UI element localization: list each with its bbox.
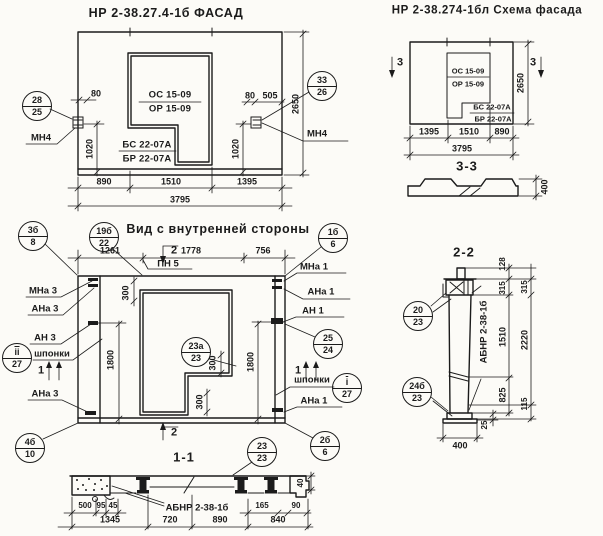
dim-95: 95 bbox=[97, 502, 106, 510]
callout-33-26: 33 26 bbox=[307, 71, 337, 101]
callout-19b-22: 19б 22 bbox=[89, 222, 119, 252]
dim-1800-right: 1800 bbox=[247, 352, 256, 372]
dim-2220: 2220 bbox=[521, 330, 530, 350]
label-pn5: ПН 5 bbox=[157, 259, 179, 269]
cut-flag-2-top: 2 bbox=[171, 246, 177, 257]
facade-mark-or: ОР 15-09 bbox=[149, 104, 191, 114]
callout-3b-8: 3б 8 bbox=[18, 221, 48, 251]
dim-890-schema: 890 bbox=[494, 128, 509, 137]
dim-400-section33: 400 bbox=[541, 179, 550, 194]
callout-20-23: 20 23 bbox=[403, 301, 433, 331]
dim-1345: 1345 bbox=[100, 516, 120, 525]
label-shponki-left: шпонки bbox=[34, 349, 70, 359]
dim-2650-schema: 2650 bbox=[517, 73, 526, 93]
label-ana1-bottom: АНа 1 bbox=[301, 396, 328, 406]
callout-24b-23: 24б 23 bbox=[402, 377, 432, 407]
dim-756: 756 bbox=[255, 247, 270, 256]
facade-title: НР 2-38.27.4-1б ФАСАД bbox=[89, 7, 244, 20]
dim-825: 825 bbox=[499, 387, 508, 402]
section-mark-3-left: 3 bbox=[397, 58, 403, 69]
dim-80-right: 80 bbox=[245, 92, 255, 101]
label-ana3-top: АНа 3 bbox=[32, 304, 59, 314]
section33-title: 3-3 bbox=[456, 160, 478, 173]
part-label-abnr-22: АБНР 2-38-1б bbox=[479, 301, 489, 364]
dim-45: 45 bbox=[109, 502, 118, 510]
callout-ii-27: ii 27 bbox=[2, 343, 32, 373]
callout-i-27: i 27 bbox=[332, 373, 362, 403]
dim-40: 40 bbox=[297, 479, 305, 488]
dim-300-bottom: 300 bbox=[196, 394, 205, 409]
part-label-abnr-11: АБНР 2-38-1б bbox=[166, 503, 229, 513]
dim-80-left: 80 bbox=[91, 90, 101, 99]
dim-128: 128 bbox=[499, 257, 507, 270]
dim-505: 505 bbox=[262, 92, 277, 101]
label-ana1-top: АНа 1 bbox=[308, 287, 335, 297]
callout-23a-23: 23а 23 bbox=[181, 337, 211, 367]
dim-1395-schema: 1395 bbox=[419, 128, 439, 137]
dim-1510-section22: 1510 bbox=[499, 327, 508, 347]
callout-28-25: 28 25 bbox=[22, 91, 52, 121]
dim-300-top: 300 bbox=[122, 285, 131, 300]
dim-90: 90 bbox=[292, 502, 301, 510]
label-mna1: МНа 1 bbox=[300, 262, 328, 272]
dim-400-section22: 400 bbox=[452, 442, 467, 451]
facade-anchor-label-right: МН4 bbox=[307, 129, 327, 139]
dim-1510-schema: 1510 bbox=[459, 128, 479, 137]
dim-1778: 1778 bbox=[181, 247, 201, 256]
schema-mark-or: ОР 15-09 bbox=[452, 80, 484, 88]
callout-23-23: 23 23 bbox=[247, 437, 277, 467]
dim-315-inner: 315 bbox=[499, 281, 507, 294]
callout-25-24: 25 24 bbox=[313, 329, 343, 359]
dim-890-section11: 890 bbox=[212, 516, 227, 525]
drawing-sheet: НР 2-38.27.4-1б ФАСАД ОС 15-09 ОР 15-09 … bbox=[0, 0, 603, 536]
label-shponki-right: шпонки bbox=[294, 375, 330, 385]
dim-3795-schema: 3795 bbox=[452, 145, 472, 154]
label-ana3-bottom: АНа 3 bbox=[32, 389, 59, 399]
dim-115: 115 bbox=[521, 398, 529, 411]
facade-mark-bs: БС 22-07А bbox=[122, 140, 171, 150]
dim-720: 720 bbox=[162, 516, 177, 525]
facade-mark-os: ОС 15-09 bbox=[149, 90, 192, 100]
dim-315-outer: 315 bbox=[521, 280, 529, 293]
dim-500: 500 bbox=[78, 502, 91, 510]
section-mark-3-right: 3 bbox=[530, 58, 536, 69]
dim-1020-right: 1020 bbox=[232, 139, 241, 159]
label-an1: АН 1 bbox=[302, 306, 324, 316]
dim-840: 840 bbox=[270, 516, 285, 525]
dim-1395-facade: 1395 bbox=[237, 178, 257, 187]
facade-mark-br: БР 22-07А bbox=[123, 154, 172, 164]
dim-165: 165 bbox=[255, 502, 268, 510]
schema-title: НР 2-38.274-1бл Схема фасада bbox=[392, 5, 583, 17]
section22-element bbox=[457, 268, 465, 279]
section11-title: 1-1 bbox=[173, 451, 195, 464]
dim-1510-facade: 1510 bbox=[161, 178, 181, 187]
dim-3795-facade: 3795 bbox=[170, 196, 190, 205]
facade-anchor-right bbox=[251, 117, 261, 128]
cut-flag-1-left: 1 bbox=[38, 366, 44, 377]
label-an3: АН 3 bbox=[34, 333, 56, 343]
schema-mark-br: БР 22-07А bbox=[474, 115, 511, 123]
dim-890-facade: 890 bbox=[96, 178, 111, 187]
section33-profile bbox=[408, 186, 518, 196]
callout-1b-6: 1б 6 bbox=[318, 223, 348, 253]
facade-anchor-label-left: МН4 bbox=[31, 133, 51, 143]
schema-mark-os: ОС 15-09 bbox=[452, 67, 485, 75]
callout-4b-10: 4б 10 bbox=[15, 433, 45, 463]
cut-flag-2-bottom: 2 bbox=[171, 428, 177, 439]
dim-1020-left: 1020 bbox=[86, 139, 95, 159]
schema-mark-bs: БС 22-07А bbox=[473, 103, 510, 111]
section22-title: 2-2 bbox=[453, 246, 475, 259]
dim-25: 25 bbox=[481, 421, 489, 430]
label-mna3: МНа 3 bbox=[29, 286, 57, 296]
dim-1800-left: 1800 bbox=[107, 350, 116, 370]
dim-2650-facade: 2650 bbox=[292, 94, 301, 114]
inner-view-title: Вид с внутренней стороны bbox=[126, 223, 309, 236]
callout-2b-6: 2б 6 bbox=[310, 431, 340, 461]
